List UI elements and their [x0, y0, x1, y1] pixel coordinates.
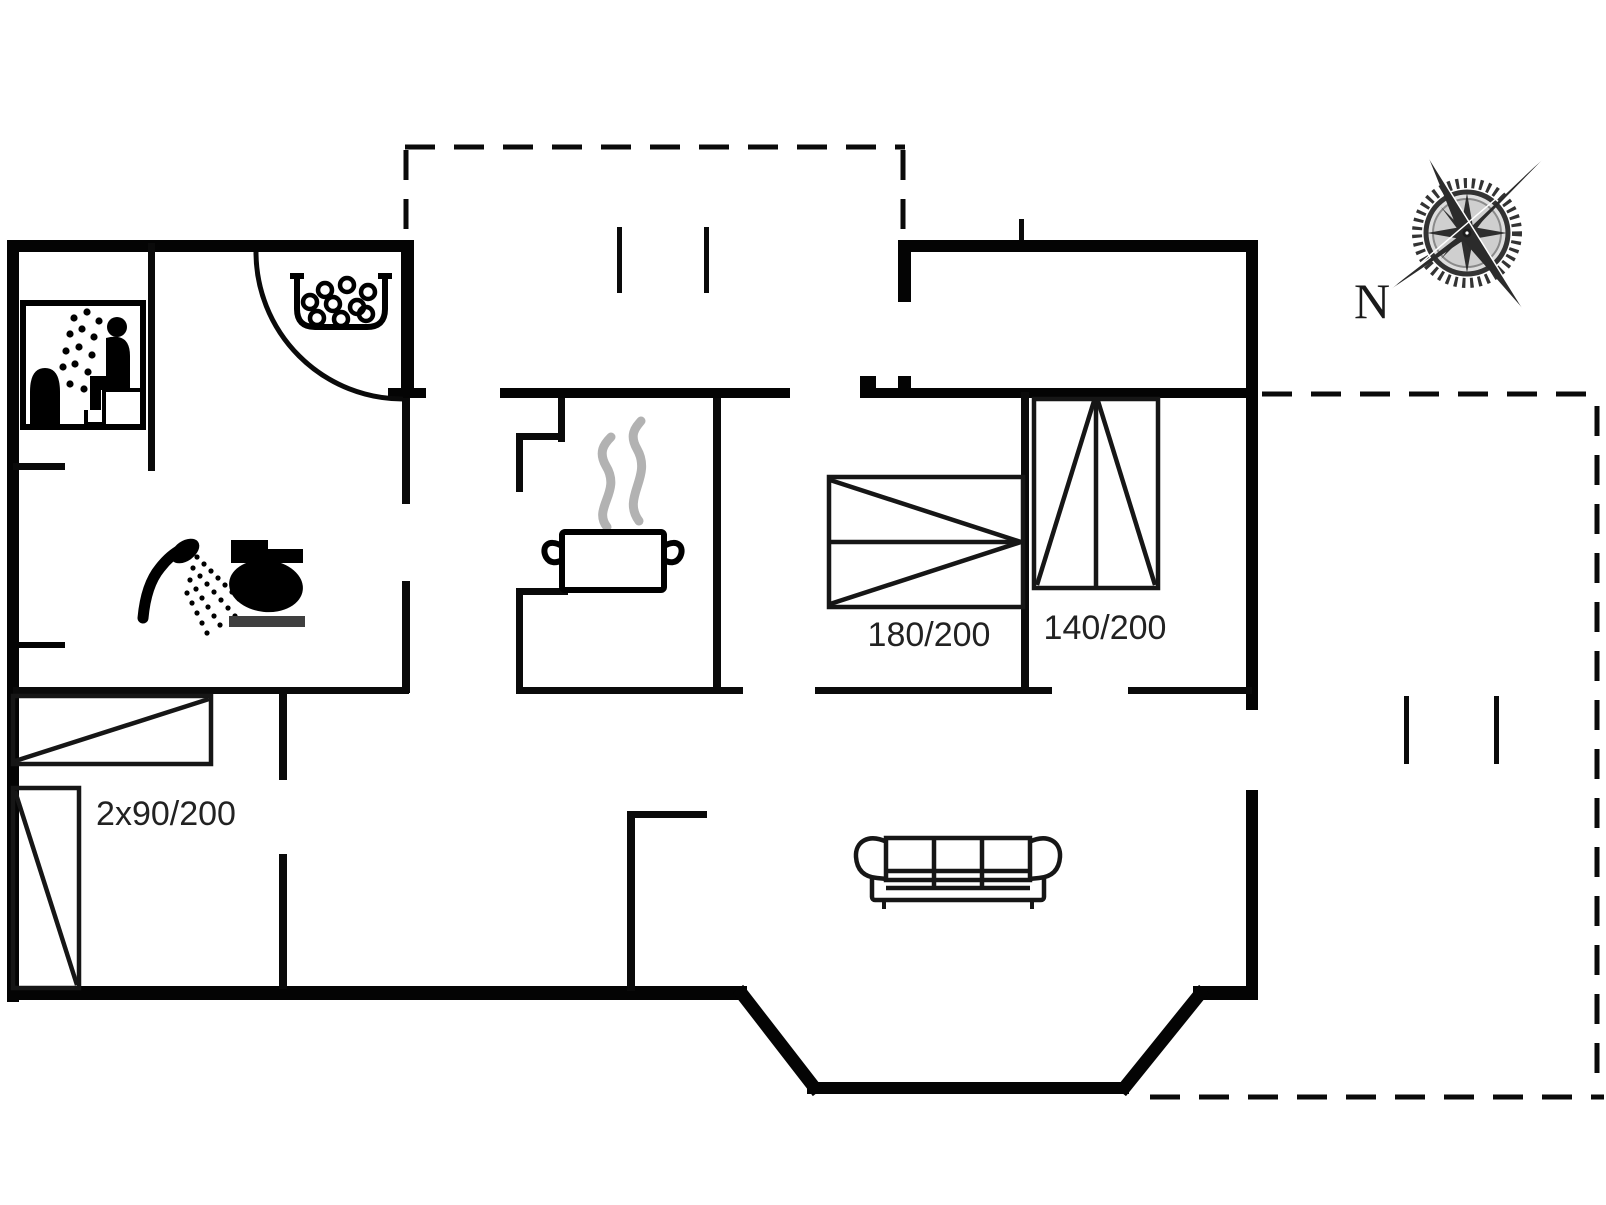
- sofa-back: [886, 838, 1030, 880]
- wall-kitchen-right: [713, 398, 721, 694]
- wall-bottom: [7, 986, 747, 1000]
- toilet-bowl: [226, 556, 305, 615]
- toilet-tank: [231, 540, 303, 563]
- bed-double-180: [829, 477, 1023, 607]
- wall-kitchen-step-3: [516, 433, 523, 492]
- toilet-icon: [226, 540, 305, 627]
- wall-tick-left: [10, 642, 65, 648]
- wall-bathroom-right-upper: [402, 398, 410, 504]
- wall-entry-right: [401, 240, 414, 398]
- wall-kitchen-bottom: [516, 687, 743, 694]
- sofa-icon: [856, 838, 1060, 909]
- wall-right-upper: [1246, 240, 1258, 710]
- wall-right-lower: [1246, 790, 1258, 1000]
- bed-140-label: 140/200: [1044, 609, 1167, 647]
- compass-north-label: N: [1354, 273, 1390, 329]
- wall-bedroom1-bottom: [815, 687, 1052, 694]
- toilet-base: [229, 616, 305, 627]
- terrace-tick-1: [617, 227, 622, 293]
- wall-kitchen-top: [500, 388, 790, 398]
- wall-top-right: [898, 240, 1258, 252]
- wall-bedroom2-bottom: [1128, 687, 1252, 694]
- floor-plan: N 180/200 140/200 2x90/200: [0, 0, 1606, 1205]
- bay-window-walls: [742, 994, 1200, 1087]
- wall-top-left: [7, 240, 412, 252]
- wall-twinroom-right-lower: [279, 854, 287, 989]
- sauna-icon: [23, 303, 143, 427]
- wall-bedrooms-top: [860, 388, 1252, 398]
- pot-body: [562, 532, 664, 590]
- whirlpool-bubbles: [303, 278, 375, 326]
- bay-window-right-diagonal: [1125, 994, 1200, 1087]
- whirlpool-icon: [290, 276, 392, 327]
- sofa-arm-left: [856, 838, 887, 879]
- annex-tick: [1019, 219, 1024, 240]
- terrace-tick-3: [1404, 696, 1409, 764]
- terrace-tick-2: [704, 227, 709, 293]
- bay-window-left-diagonal: [742, 994, 814, 1087]
- wall-hall-vertical: [627, 811, 635, 991]
- beds-twin-2x90: [13, 696, 211, 988]
- wall-kitchen-left-lower: [516, 588, 523, 694]
- wall-cap-mid: [860, 376, 876, 398]
- bed-double-label: 180/200: [868, 616, 991, 654]
- wall-bathroom-bottom: [13, 687, 409, 694]
- cooking-pot-icon: [544, 421, 681, 590]
- wall-annex-left-upper: [898, 240, 911, 302]
- shower-icon: [143, 534, 242, 636]
- wall-sauna-right: [148, 243, 155, 471]
- wall-kitchen-step-2: [516, 433, 565, 440]
- wall-hall-horizontal: [627, 811, 707, 818]
- sauna-heater: [30, 368, 60, 424]
- wall-annex-left-nub: [898, 376, 911, 396]
- wall-twinroom-right-upper: [279, 694, 287, 780]
- compass-rose-icon: N: [1354, 156, 1546, 329]
- terrace-dashed-outline: [405, 147, 1604, 1097]
- sofa-arm-right: [1029, 838, 1060, 879]
- bay-window-bottom: [807, 1082, 1129, 1094]
- wall-bathroom-right-lower: [402, 581, 410, 693]
- terrace-tick-4: [1494, 696, 1499, 764]
- steam-icon: [602, 421, 641, 527]
- bed-140: [1034, 399, 1158, 588]
- wall-sauna-bottom-stub: [13, 463, 65, 470]
- bed-twin-label: 2x90/200: [96, 795, 236, 833]
